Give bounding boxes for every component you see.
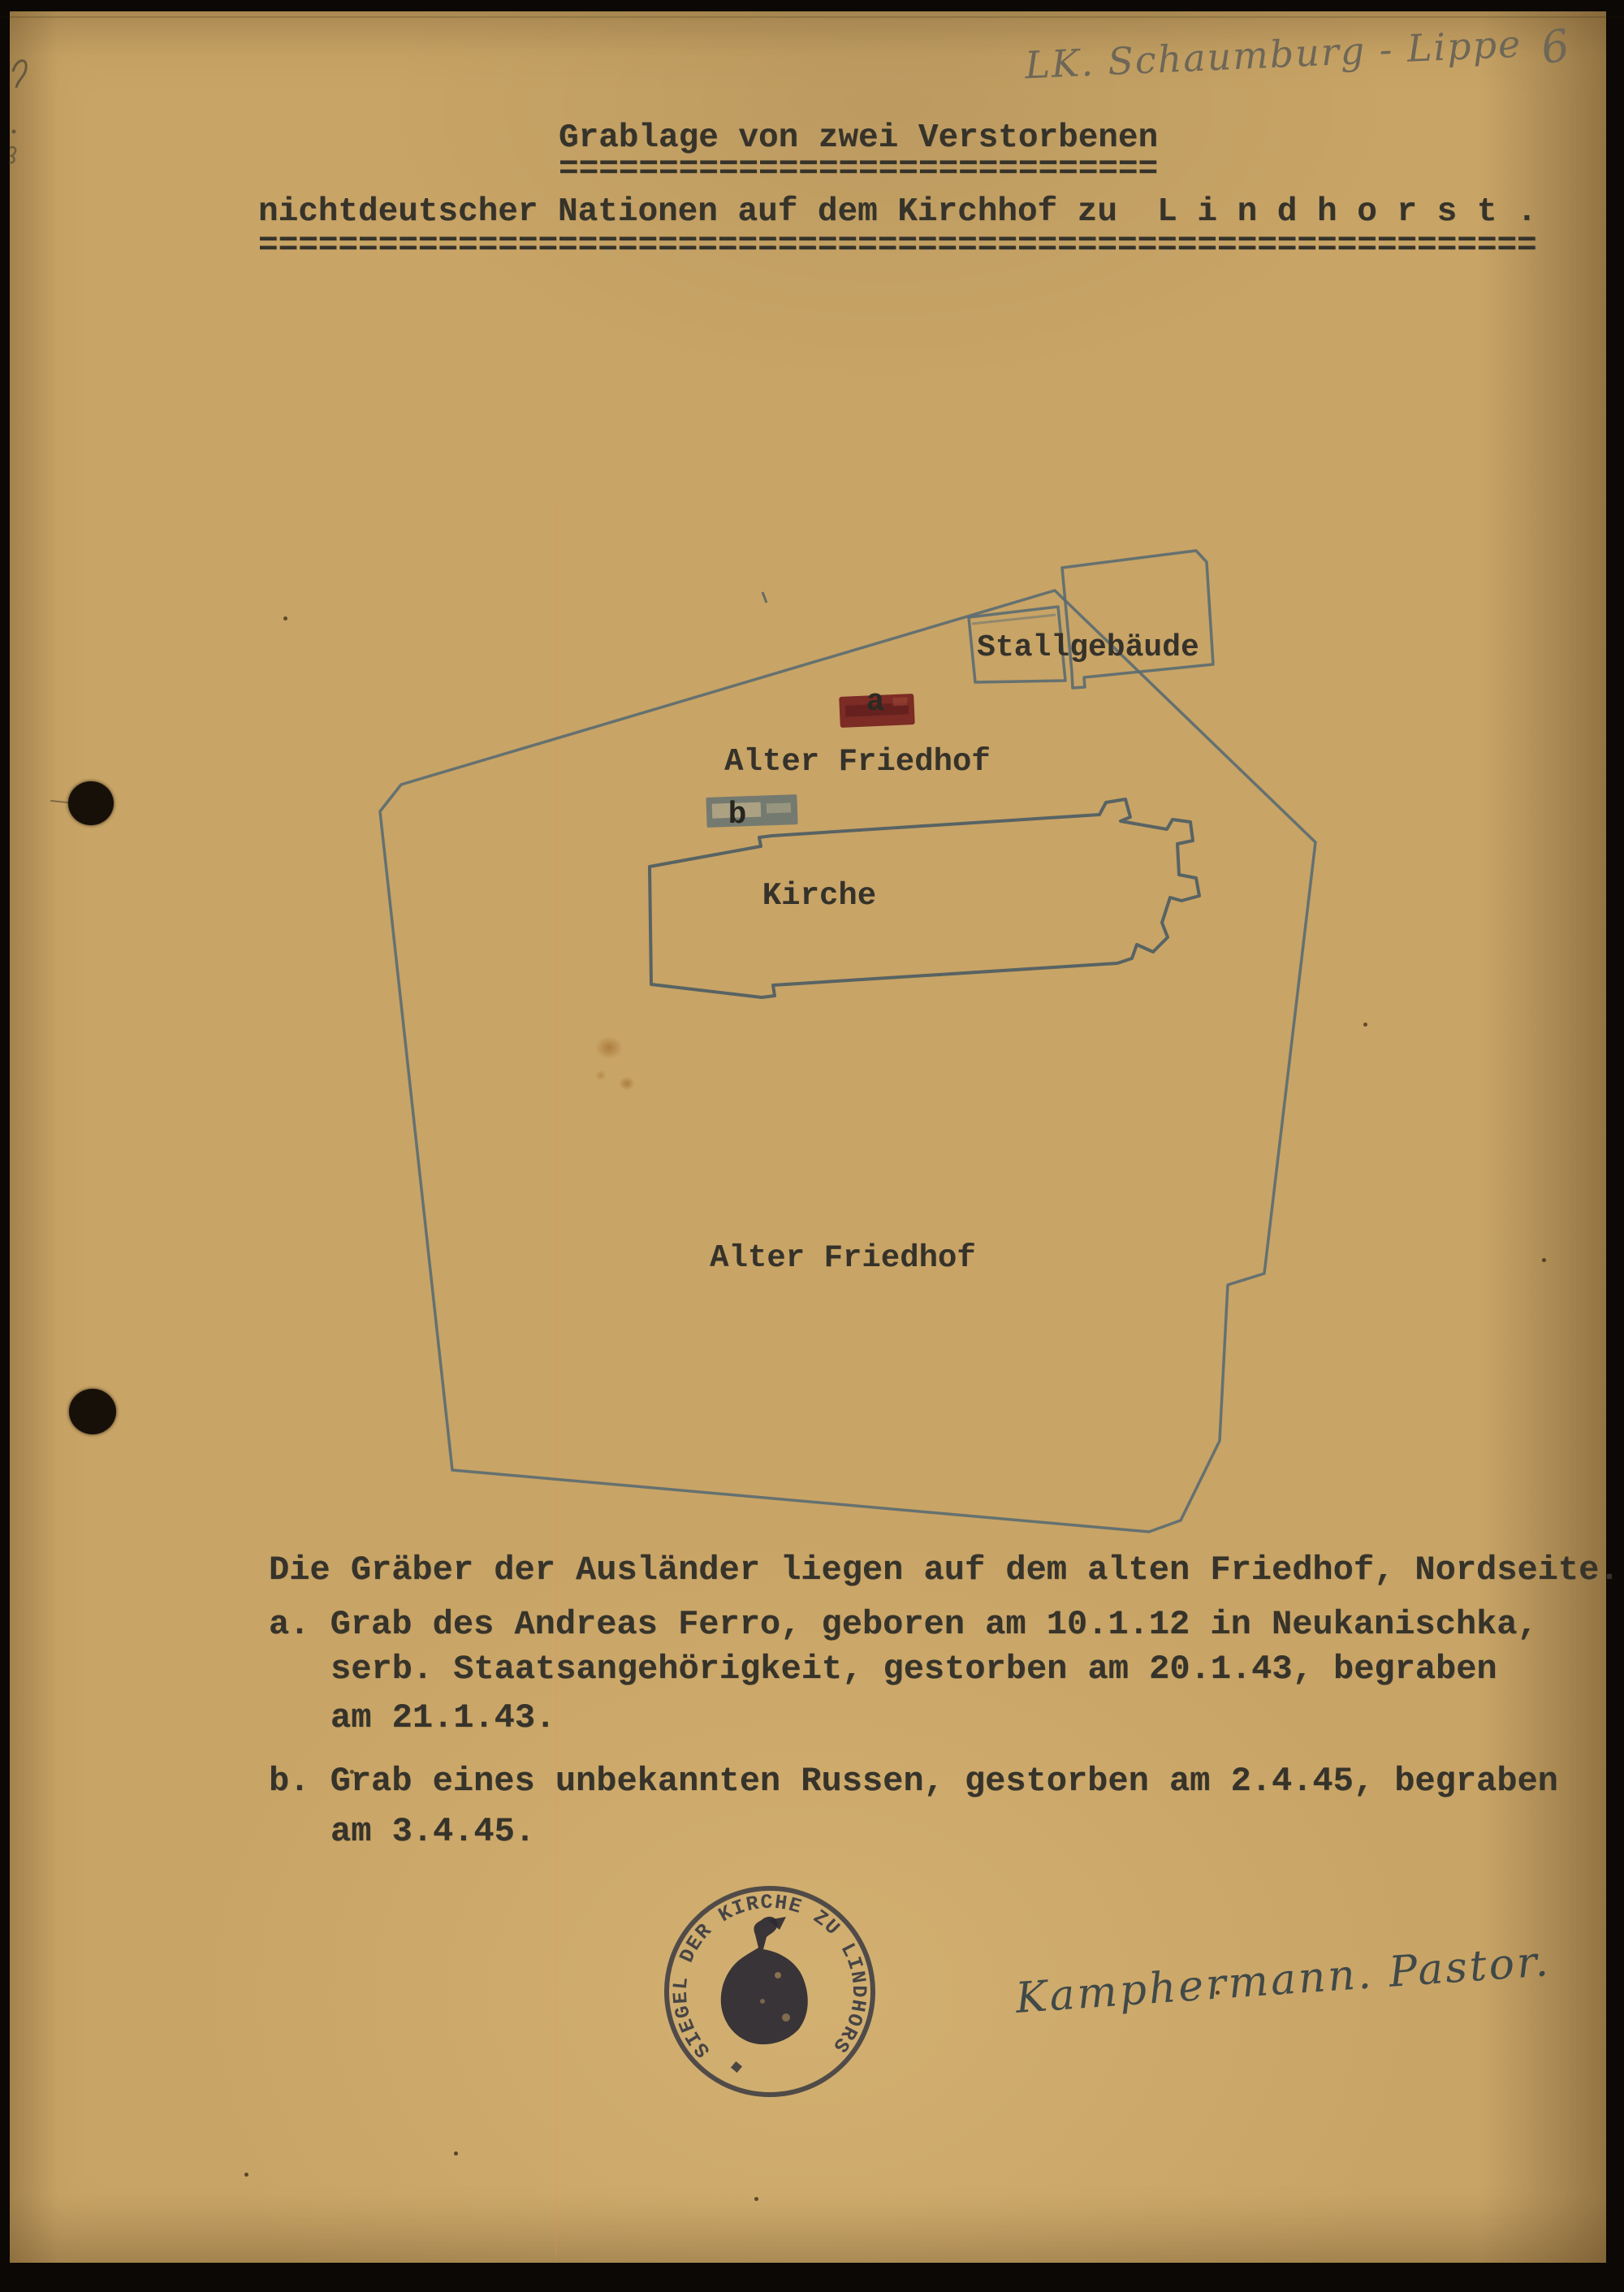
cemetery-label-upper: Alter Friedhof (724, 744, 991, 780)
scan-border-right (1606, 0, 1624, 2292)
punch-hole-bottom (69, 1389, 116, 1434)
cemetery-label-lower: Alter Friedhof (710, 1240, 976, 1276)
note-b-line1: b. Grab eines unbekannten Russen, gestor… (269, 1762, 1558, 1800)
note-a-line3: am 21.1.43. (330, 1699, 555, 1736)
scan-border-bottom (0, 2263, 1624, 2292)
stamp-emblem (721, 1917, 808, 2044)
paper-specks (0, 0, 2, 2)
grave-a-label: a (866, 685, 885, 720)
title-underline2: ========================================… (258, 227, 1537, 265)
note-a-line1: a. Grab des Andreas Ferro, geboren am 10… (269, 1606, 1538, 1643)
punch-hole-top (68, 781, 114, 825)
page-title-line2: nichtdeutscher Nationen auf dem Kirchhof… (258, 193, 1537, 231)
scan-border-top (0, 0, 1624, 11)
church-seal-stamp: SIEGEL DER KIRCHE ZU LINDHORST (656, 1878, 883, 2105)
title-underline1: ============================== (559, 151, 1158, 188)
church-label: Kirche (762, 878, 876, 914)
cemetery-boundary-outline (380, 590, 1315, 1532)
grave-b-mark (706, 794, 797, 828)
scan-border-left (0, 0, 10, 2292)
notes-intro: Die Gräber der Ausländer liegen auf dem … (269, 1551, 1619, 1589)
stable-label: Stallgebäude (977, 630, 1199, 665)
note-a-line2: serb. Staatsangehörigkeit, gestorben am … (330, 1650, 1497, 1688)
note-b-line2: am 3.4.45. (330, 1813, 535, 1850)
stamp-diamond (731, 2061, 742, 2073)
grave-b-label: b (728, 798, 747, 832)
scanned-document: LK. Schaumburg - Lippe 6 Grablage von zw… (0, 0, 1624, 2292)
site-plan-map: a Alter Friedhof b Stallgebäude Kirche A… (349, 536, 1380, 1559)
boundary-tick (762, 592, 767, 603)
scan-seam (0, 16, 1624, 18)
margin-pen-marks (0, 49, 57, 179)
